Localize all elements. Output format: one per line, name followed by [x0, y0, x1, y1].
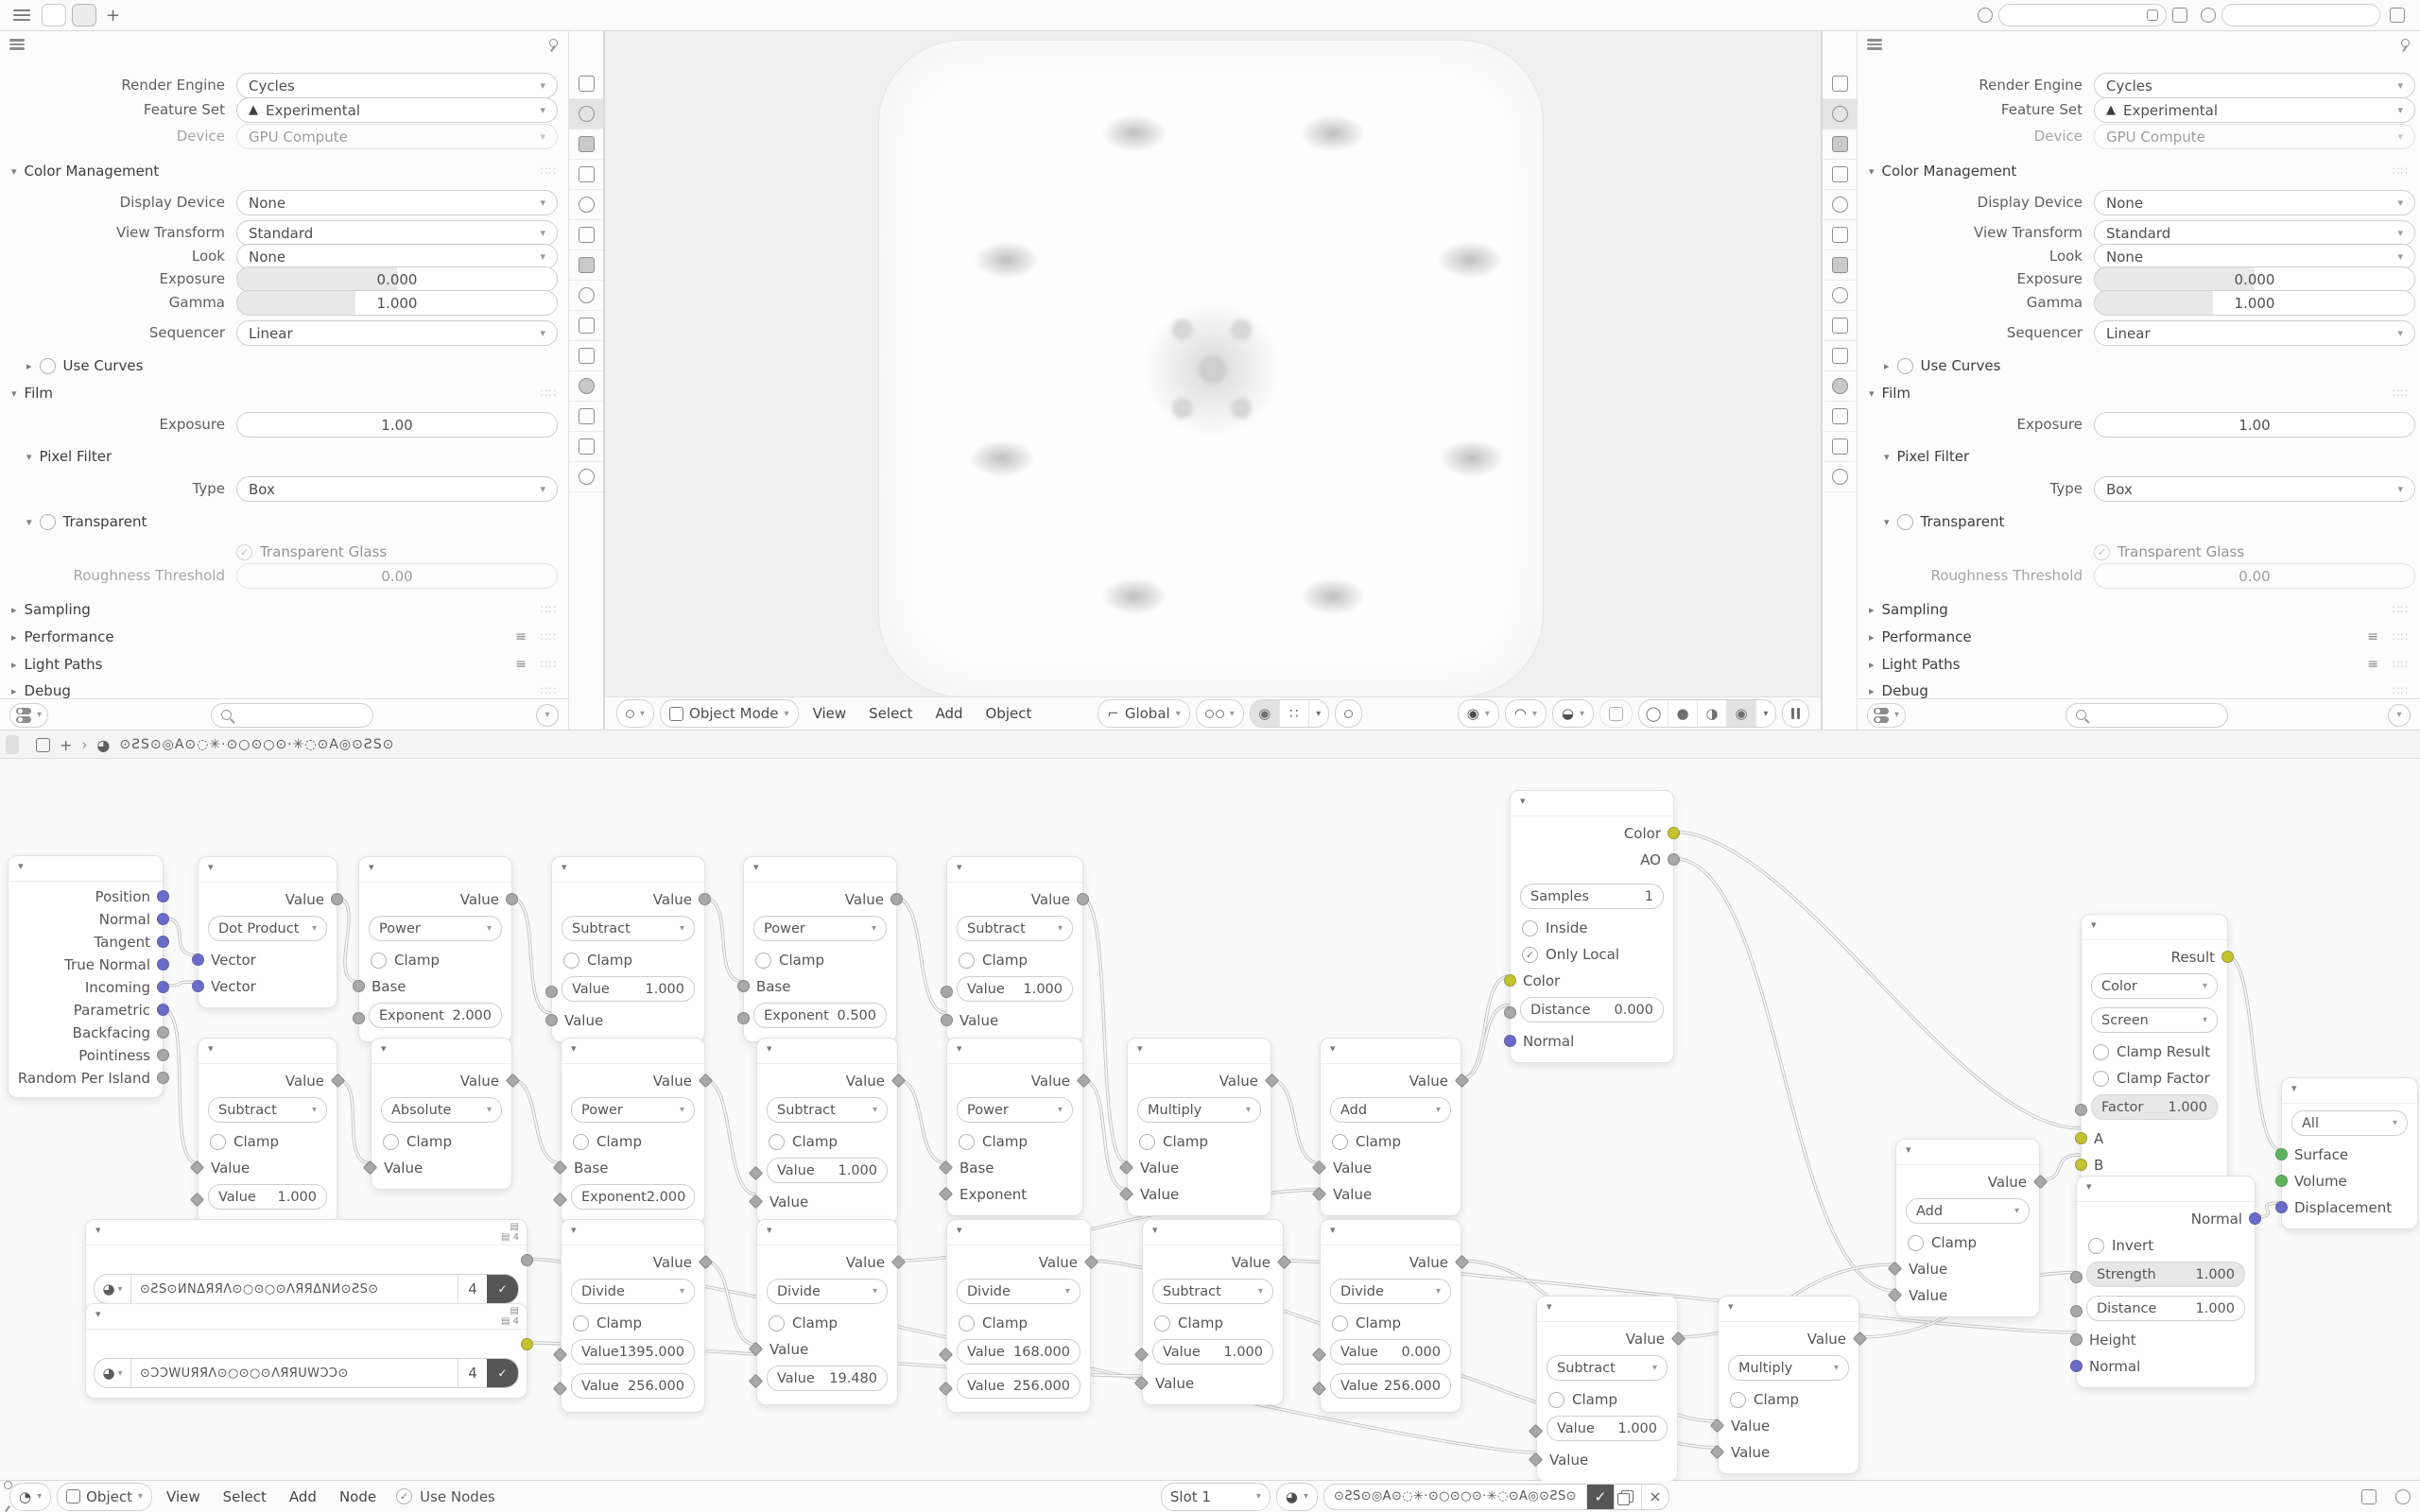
output-socket[interactable] — [2221, 951, 2234, 963]
collapse-icon[interactable]: ▾ — [1906, 1143, 1911, 1156]
checkbox-clamp[interactable]: Clamp — [359, 947, 511, 973]
fake-user-shield-icon[interactable]: ✓ — [487, 1359, 518, 1387]
input-socket[interactable] — [2275, 1175, 2288, 1187]
user-count-badge[interactable]: 4 — [458, 1359, 487, 1387]
input-socket[interactable] — [2275, 1148, 2288, 1160]
gamma-slider[interactable]: 1.000 — [2094, 290, 2415, 316]
node-p1[interactable]: ▾ValuePower▾ClampBaseExponent2.000 — [358, 856, 512, 1042]
output-socket[interactable] — [1077, 893, 1089, 905]
value-field[interactable]: Exponent2.000 — [571, 1184, 695, 1210]
output-socket[interactable] — [699, 893, 711, 905]
snap-dropdown[interactable]: ▾ — [1196, 699, 1244, 728]
image-name-field[interactable]: ⊙ƧS⊙ИΝΔЯЯΛ⊙○⊙○⊙ΛЯЯΔΝИ⊙ƧS⊙ — [131, 1275, 458, 1303]
section-light-paths[interactable]: ▸Light Paths — [1869, 652, 1961, 678]
output-socket[interactable] — [157, 1026, 169, 1039]
sequencer-select[interactable]: Linear▾ — [236, 320, 558, 346]
output-socket[interactable] — [890, 893, 903, 905]
menu-icon[interactable] — [13, 9, 30, 21]
node-img1[interactable]: ▾▤▤ 4◕▾⊙ƧS⊙ИΝΔЯЯΛ⊙○⊙○⊙ΛЯЯΔΝИ⊙ƧS⊙4✓ — [85, 1219, 527, 1314]
operation-select[interactable]: Power▾ — [753, 916, 887, 941]
node-mix[interactable]: ▾ResultColor▾Screen▾Clamp ResultClamp Fa… — [2081, 914, 2228, 1187]
input-socket[interactable] — [1504, 974, 1516, 987]
output-socket[interactable] — [157, 958, 169, 971]
tab-material[interactable] — [1823, 432, 1857, 462]
node-ao[interactable]: ▾ColorAOSamples1Inside✓Only LocalColorDi… — [1510, 790, 1674, 1063]
node-p3[interactable]: ▾ValuePower▾ClampBaseExponent2.000 — [561, 1038, 705, 1224]
value-field[interactable]: Samples1 — [1520, 884, 1664, 909]
menu-add[interactable]: Add — [926, 705, 971, 722]
add-view-layer-icon[interactable] — [2390, 8, 2405, 23]
input-socket[interactable] — [353, 1012, 365, 1024]
menu-view[interactable]: View — [158, 1488, 209, 1505]
tab-tool[interactable] — [1823, 69, 1857, 99]
section-transparent[interactable]: ▾ Transparent — [26, 509, 147, 535]
node-s4[interactable]: ▾ValueSubtract▾ClampValue1.000Value — [1142, 1219, 1284, 1405]
input-socket[interactable] — [1312, 1381, 1327, 1396]
input-socket[interactable] — [1504, 1006, 1516, 1019]
operation-select[interactable]: All▾ — [2291, 1110, 2408, 1136]
workspace-tab-1[interactable] — [42, 4, 66, 26]
preset-icon[interactable]: ≡ — [2367, 625, 2378, 650]
node-mul2[interactable]: ▾ValueMultiply▾ClampValueValue — [1718, 1296, 1859, 1474]
input-socket[interactable] — [2070, 1271, 2083, 1283]
panel-options-button[interactable]: ▾ — [2388, 704, 2411, 727]
render-engine-select[interactable]: Cycles▾ — [236, 73, 558, 98]
collapse-icon[interactable]: ▾ — [957, 861, 962, 873]
preset-icon[interactable]: ≡ — [2367, 652, 2378, 678]
output-socket[interactable] — [521, 1254, 533, 1266]
input-socket[interactable] — [553, 1347, 568, 1362]
value-field[interactable]: Value1.000 — [1152, 1339, 1273, 1365]
gizmos-dropdown[interactable]: ◠▾ — [1505, 699, 1547, 728]
collapse-icon[interactable]: ▾ — [381, 1042, 387, 1055]
value-field[interactable]: Value256.000 — [1330, 1373, 1451, 1399]
tab-modifiers[interactable] — [569, 281, 603, 311]
value-field[interactable]: Distance1.000 — [2086, 1296, 2245, 1321]
node-d3[interactable]: ▾ValueDivide▾ClampValue168.000Value256.0… — [946, 1219, 1091, 1413]
collapse-icon[interactable]: ▾ — [95, 1308, 101, 1320]
value-field[interactable]: Value1.000 — [208, 1184, 327, 1210]
tab-physics[interactable] — [1823, 341, 1857, 371]
output-socket[interactable] — [157, 913, 169, 925]
view-layer-selector[interactable] — [2221, 4, 2380, 26]
node-d2[interactable]: ▾ValueDivide▾ClampValueValue19.480 — [756, 1219, 898, 1405]
editor-type-dropdown[interactable]: ◔▾ — [9, 1483, 51, 1511]
viewport-3d[interactable]: ▾ Object Mode▾ View Select Add Object ⌐ … — [605, 31, 1821, 730]
checkbox-clamp[interactable]: Clamp — [562, 1310, 704, 1336]
menu-node[interactable]: Node — [331, 1488, 385, 1505]
section-transparent[interactable]: ▾ Transparent — [1884, 509, 2004, 535]
tab-world[interactable] — [1823, 220, 1857, 250]
copy-icon[interactable] — [2172, 8, 2187, 23]
operation-select[interactable]: Divide▾ — [1330, 1279, 1451, 1304]
transparent-glass-row[interactable]: ✓ Transparent Glass — [2094, 540, 2244, 565]
collapse-icon[interactable]: ▾ — [571, 1224, 577, 1236]
collapse-icon[interactable]: ▾ — [1152, 1224, 1158, 1236]
value-field[interactable]: Value1.000 — [767, 1158, 888, 1183]
collapse-icon[interactable]: ▾ — [562, 861, 567, 873]
pin-id-icon[interactable] — [545, 39, 559, 52]
tab-object-data[interactable] — [1823, 402, 1857, 432]
input-socket[interactable] — [545, 986, 558, 998]
tab-texture[interactable] — [569, 462, 603, 492]
collapse-icon[interactable]: ▾ — [1330, 1224, 1336, 1236]
operation-select[interactable]: Divide▾ — [767, 1279, 888, 1304]
roughness-threshold-slider[interactable]: 0.00 — [2094, 563, 2415, 589]
workspace-tab-2[interactable] — [72, 4, 96, 26]
tab-material[interactable] — [569, 432, 603, 462]
node-s5[interactable]: ▾ValueSubtract▾ClampValue1.000Value — [1536, 1296, 1678, 1481]
tab-tool[interactable] — [569, 69, 603, 99]
transparent-glass-checkbox[interactable]: ✓ — [2094, 544, 2110, 560]
collapse-icon[interactable]: ▾ — [18, 860, 24, 872]
value-field[interactable]: Value19.480 — [767, 1366, 888, 1391]
collapse-icon[interactable]: ▾ — [767, 1042, 772, 1055]
overlays-dropdown[interactable]: ◒▾ — [1552, 699, 1594, 728]
input-socket[interactable] — [2070, 1360, 2083, 1372]
collapse-icon[interactable]: ▾ — [208, 1042, 214, 1055]
feature-set-select[interactable]: ▲Experimental▾ — [2094, 97, 2415, 123]
tab-particles[interactable] — [569, 311, 603, 341]
input-socket[interactable] — [737, 1012, 750, 1024]
checkbox-clamp[interactable]: Clamp — [552, 947, 704, 973]
section-light-paths[interactable]: ▸Light Paths — [11, 652, 103, 678]
menu-select[interactable]: Select — [215, 1488, 275, 1505]
pause-render-button[interactable] — [1782, 699, 1809, 728]
checkbox-clamp[interactable]: Clamp — [1321, 1128, 1461, 1155]
proportional-icon[interactable]: ◉ — [1251, 700, 1279, 727]
transparent-glass-row[interactable]: ✓ Transparent Glass — [236, 540, 387, 565]
operation-select[interactable]: Power▾ — [369, 916, 502, 941]
value-field[interactable]: Value1.000 — [1547, 1416, 1668, 1441]
section-use-curves[interactable]: ▸ Use Curves — [1884, 353, 2000, 379]
node-mul1[interactable]: ▾ValueMultiply▾ClampValueValue — [1127, 1038, 1271, 1216]
tab-output[interactable] — [1823, 129, 1857, 160]
material-slot-dropdown[interactable]: Slot 1▾ — [1161, 1483, 1270, 1511]
output-socket[interactable] — [1668, 853, 1680, 866]
pin-id-icon[interactable] — [2397, 39, 2411, 52]
collapse-icon[interactable]: ▾ — [767, 1224, 772, 1236]
display-device-select[interactable]: None▾ — [236, 190, 558, 215]
collapse-icon[interactable]: ▾ — [208, 861, 214, 873]
collapse-icon[interactable]: ▾ — [2291, 1082, 2297, 1094]
transparent-checkbox[interactable] — [1897, 514, 1913, 530]
options-icon[interactable] — [2395, 1489, 2411, 1504]
feature-set-select[interactable]: ▲Experimental▾ — [236, 97, 558, 123]
section-use-curves[interactable]: ▸ Use Curves — [26, 353, 143, 379]
look-select[interactable]: None▾ — [2094, 244, 2415, 269]
tab-constraints[interactable] — [1823, 371, 1857, 402]
section-sampling[interactable]: ▸Sampling — [11, 597, 91, 623]
operation-select[interactable]: Subtract▾ — [1547, 1355, 1668, 1381]
section-color-management[interactable]: ▾Color Management — [11, 159, 159, 184]
input-socket[interactable] — [2075, 1132, 2087, 1144]
operation-select[interactable]: Screen▾ — [2091, 1007, 2218, 1033]
display-device-select[interactable]: None▾ — [2094, 190, 2415, 215]
value-field[interactable]: Value1.000 — [957, 976, 1073, 1002]
view-transform-select[interactable]: Standard▾ — [236, 220, 558, 246]
checkbox-clamp[interactable]: Clamp — [372, 1128, 511, 1155]
exposure-slider[interactable]: 0.000 — [2094, 266, 2415, 292]
operation-select[interactable]: Dot Product▾ — [208, 916, 327, 941]
material-name-field[interactable]: ⊙ƧS⊙◎A⊙◌✳·⊙○⊙○⊙·✳◌⊙A◎⊙ƧS⊙ — [1324, 1485, 1586, 1509]
input-socket[interactable] — [545, 1014, 558, 1026]
transparent-glass-checkbox[interactable]: ✓ — [236, 544, 252, 560]
editor-mode-icon[interactable] — [36, 738, 50, 752]
input-socket[interactable] — [553, 1192, 568, 1207]
operation-select[interactable]: Color▾ — [2091, 973, 2218, 999]
output-socket[interactable] — [157, 1004, 169, 1016]
value-field[interactable]: Value1395.000 — [571, 1339, 695, 1365]
value-field[interactable]: Distance0.000 — [1520, 997, 1664, 1022]
operation-select[interactable]: Power▾ — [571, 1097, 695, 1123]
fake-user-shield-icon[interactable]: ✓ — [1586, 1485, 1614, 1509]
checkbox-clamp[interactable]: Clamp — [744, 947, 896, 973]
tab-world[interactable] — [569, 220, 603, 250]
filter-dropdown[interactable]: ▾ — [1867, 703, 1906, 728]
xray-toggle[interactable] — [1599, 699, 1633, 728]
sequencer-select[interactable]: Linear▾ — [2094, 320, 2415, 346]
input-socket[interactable] — [1312, 1347, 1327, 1362]
tab-texture[interactable] — [1823, 462, 1857, 492]
output-socket[interactable] — [157, 890, 169, 902]
region-handle[interactable] — [6, 735, 19, 754]
output-socket[interactable] — [506, 893, 518, 905]
output-socket[interactable] — [2249, 1212, 2261, 1225]
input-socket[interactable] — [2075, 1104, 2087, 1116]
collapse-icon[interactable]: ▾ — [571, 1042, 577, 1055]
operation-select[interactable]: Add▾ — [1906, 1198, 2030, 1224]
input-socket[interactable] — [2070, 1305, 2083, 1317]
input-socket[interactable] — [192, 954, 204, 966]
checkbox-clamp-result[interactable]: Clamp Result — [2082, 1039, 2227, 1065]
value-field[interactable]: Exponent2.000 — [369, 1003, 502, 1028]
use-curves-checkbox[interactable] — [40, 358, 56, 374]
browse-image-dropdown[interactable]: ◕▾ — [95, 1275, 131, 1303]
node-s3[interactable]: ▾ValueSubtract▾ClampValue1.000Value — [756, 1038, 898, 1224]
device-select[interactable]: GPU Compute▾ — [2094, 124, 2415, 149]
output-socket[interactable] — [157, 936, 169, 948]
node-img2[interactable]: ▾▤▤ 4◕▾⊙ƆƆWUЯЯΛ⊙○⊙○⊙ΛЯЯUWƆƆ⊙4✓ — [85, 1303, 527, 1399]
menu-add[interactable]: Add — [281, 1488, 325, 1505]
checkbox-clamp[interactable]: Clamp — [947, 947, 1082, 973]
operation-select[interactable]: Add▾ — [1330, 1097, 1451, 1123]
editor-type-icon[interactable] — [1867, 39, 1882, 50]
value-field[interactable]: Value168.000 — [957, 1339, 1080, 1365]
unlink-datablock-icon[interactable]: × — [1641, 1485, 1668, 1509]
operation-select[interactable]: Divide▾ — [957, 1279, 1080, 1304]
transform-orientation-dropdown[interactable]: ⌐ Global▾ — [1098, 699, 1189, 728]
value-field[interactable]: Value0.000 — [1330, 1339, 1451, 1365]
node-add2[interactable]: ▾ValueAdd▾ClampValueValue — [1895, 1139, 2040, 1317]
node-p4[interactable]: ▾ValuePower▾ClampBaseExponent — [946, 1038, 1083, 1216]
tab-scene[interactable] — [1823, 190, 1857, 220]
input-socket[interactable] — [941, 1014, 953, 1026]
input-socket[interactable] — [192, 980, 204, 992]
operation-select[interactable]: Absolute▾ — [381, 1097, 502, 1123]
operation-select[interactable]: Subtract▾ — [1152, 1279, 1273, 1304]
shading-rendered-icon[interactable]: ◉ — [1726, 700, 1755, 727]
checkbox-clamp[interactable]: Clamp — [947, 1128, 1082, 1155]
section-film[interactable]: ▾Film — [1869, 381, 1910, 406]
input-socket[interactable] — [190, 1192, 205, 1207]
node-d1[interactable]: ▾ValueDivide▾ClampValue1395.000Value256.… — [561, 1219, 705, 1413]
collapse-icon[interactable]: ▾ — [1728, 1300, 1734, 1313]
exposure-slider[interactable]: 0.000 — [236, 266, 558, 292]
node-s1[interactable]: ▾ValueSubtract▾ClampValue1.000Value — [551, 856, 705, 1042]
checkbox-inside[interactable]: Inside — [1511, 915, 1673, 941]
proportional-center-toggle[interactable] — [1335, 699, 1362, 728]
menu-view[interactable]: View — [804, 705, 856, 722]
checkbox-clamp[interactable]: Clamp — [757, 1310, 897, 1336]
operation-select[interactable]: Subtract▾ — [562, 916, 695, 941]
copy-datablock-icon[interactable] — [1614, 1485, 1641, 1509]
value-field[interactable]: Value256.000 — [571, 1373, 695, 1399]
output-socket[interactable] — [521, 1338, 533, 1350]
gamma-slider[interactable]: 1.000 — [236, 290, 558, 316]
filter-dropdown[interactable]: ▾ — [9, 703, 48, 728]
tab-object[interactable] — [569, 250, 603, 281]
tab-scene[interactable] — [569, 190, 603, 220]
collapse-icon[interactable]: ▾ — [2091, 919, 2097, 931]
add-workspace-button[interactable]: + — [106, 6, 120, 26]
browse-image-dropdown[interactable]: ◕▾ — [95, 1359, 131, 1387]
value-field[interactable]: Value256.000 — [957, 1373, 1080, 1399]
input-socket[interactable] — [1134, 1347, 1149, 1362]
falloff-grid-icon[interactable]: ∷ — [1279, 700, 1308, 727]
checkbox-clamp[interactable]: Clamp — [947, 1310, 1090, 1336]
user-count-badge[interactable]: 4 — [458, 1275, 487, 1303]
input-socket[interactable] — [941, 986, 953, 998]
use-curves-checkbox[interactable] — [1897, 358, 1913, 374]
operation-select[interactable]: Divide▾ — [571, 1279, 695, 1304]
collapse-icon[interactable]: ▾ — [957, 1224, 962, 1236]
show-gizmo-dropdown[interactable]: ◉▾ — [1458, 699, 1499, 728]
output-socket[interactable] — [331, 893, 343, 905]
input-socket[interactable] — [737, 980, 750, 992]
device-select[interactable]: GPU Compute▾ — [236, 124, 558, 149]
collapse-icon[interactable]: ▾ — [753, 861, 759, 873]
output-socket[interactable] — [1668, 827, 1680, 839]
input-socket[interactable] — [2070, 1333, 2083, 1346]
collapse-icon[interactable]: ▾ — [95, 1224, 101, 1236]
image-name-field[interactable]: ⊙ƆƆWUЯЯΛ⊙○⊙○⊙ΛЯЯUWƆƆ⊙ — [131, 1359, 458, 1387]
input-socket[interactable] — [1504, 1035, 1516, 1047]
node-add1[interactable]: ▾ValueAdd▾ClampValueValue — [1320, 1038, 1461, 1216]
input-socket[interactable] — [1529, 1423, 1544, 1438]
film-exposure-slider[interactable]: 1.00 — [2094, 412, 2415, 438]
section-performance[interactable]: ▸Performance — [1869, 625, 1972, 650]
collapse-icon[interactable]: ▾ — [1520, 795, 1526, 807]
node-m1[interactable]: ▾ValueSubtract▾ClampValueValue1.000 — [198, 1038, 337, 1224]
use-nodes-checkbox[interactable]: ✓Use Nodes — [390, 1488, 495, 1505]
shading-wireframe-icon[interactable]: ◯ — [1639, 700, 1668, 727]
section-color-management[interactable]: ▾Color Management — [1869, 159, 2016, 184]
menu-object[interactable]: Object — [977, 705, 1041, 722]
tab-render[interactable] — [1823, 99, 1857, 129]
section-film[interactable]: ▾Film — [11, 381, 53, 406]
collapse-icon[interactable]: ▾ — [369, 861, 374, 873]
collapse-icon[interactable]: ▾ — [1330, 1042, 1336, 1055]
node-d4[interactable]: ▾ValueDivide▾ClampValue0.000Value256.000 — [1320, 1219, 1461, 1413]
output-socket[interactable] — [157, 981, 169, 993]
output-socket[interactable] — [157, 1072, 169, 1084]
snap-grid-icon[interactable] — [2361, 1489, 2377, 1504]
checkbox-clamp-factor[interactable]: Clamp Factor — [2082, 1065, 2227, 1091]
node-out[interactable]: ▾All▾SurfaceVolumeDisplacement — [2281, 1077, 2418, 1229]
input-socket[interactable] — [2075, 1159, 2087, 1171]
collapse-icon[interactable]: ▾ — [957, 1042, 962, 1055]
checkbox-clamp[interactable]: Clamp — [199, 1128, 337, 1155]
value-field[interactable]: Strength1.000 — [2086, 1262, 2245, 1287]
preset-icon[interactable]: ≡ — [515, 652, 527, 678]
tab-view-layer[interactable] — [569, 160, 603, 190]
node-geo[interactable]: ▾PositionNormalTangentTrue NormalIncomin… — [8, 855, 164, 1098]
operation-select[interactable]: Power▾ — [957, 1097, 1073, 1123]
unlink-icon[interactable] — [2147, 9, 2158, 21]
menu-select[interactable]: Select — [860, 705, 921, 722]
collapse-icon[interactable]: ▾ — [2086, 1180, 2092, 1193]
value-field[interactable]: Factor1.000 — [2091, 1094, 2218, 1120]
scene-selector[interactable] — [1998, 4, 2167, 26]
input-socket[interactable] — [553, 1381, 568, 1396]
pixel-filter-type-select[interactable]: Box▾ — [236, 476, 558, 502]
checkbox-clamp[interactable]: Clamp — [1896, 1229, 2039, 1256]
value-field[interactable]: Value1.000 — [562, 976, 695, 1002]
checkbox-invert[interactable]: Invert — [2077, 1232, 2255, 1259]
tab-modifiers[interactable] — [1823, 281, 1857, 311]
roughness-threshold-slider[interactable]: 0.00 — [236, 563, 558, 589]
preset-icon[interactable]: ≡ — [515, 625, 527, 650]
tab-render[interactable] — [569, 99, 603, 129]
tab-output[interactable] — [569, 129, 603, 160]
input-socket[interactable] — [2275, 1201, 2288, 1213]
section-sampling[interactable]: ▸Sampling — [1869, 597, 1948, 623]
tab-particles[interactable] — [1823, 311, 1857, 341]
node-vm1[interactable]: ▾ValueDot Product▾VectorVector — [198, 856, 337, 1008]
checkbox-clamp[interactable]: Clamp — [1537, 1386, 1677, 1413]
input-socket[interactable] — [939, 1381, 954, 1396]
checkbox-only-local[interactable]: ✓Only Local — [1511, 941, 1673, 968]
fake-user-shield-icon[interactable]: ✓ — [487, 1275, 518, 1303]
tab-object-data[interactable] — [569, 402, 603, 432]
operation-select[interactable]: Subtract▾ — [957, 916, 1073, 941]
checkbox-clamp[interactable]: Clamp — [562, 1128, 704, 1155]
operation-select[interactable]: Subtract▾ — [767, 1097, 888, 1123]
node-p2[interactable]: ▾ValuePower▾ClampBaseExponent0.500 — [743, 856, 897, 1042]
view-transform-select[interactable]: Standard▾ — [2094, 220, 2415, 246]
shading-solid-icon[interactable]: ● — [1668, 700, 1697, 727]
section-pixel-filter[interactable]: ▾Pixel Filter — [26, 444, 112, 470]
input-socket[interactable] — [353, 980, 365, 992]
input-socket[interactable] — [939, 1347, 954, 1362]
panel-options-button[interactable]: ▾ — [536, 704, 559, 727]
checkbox-clamp[interactable]: Clamp — [1719, 1386, 1858, 1413]
collapse-icon[interactable]: ▾ — [1137, 1042, 1143, 1055]
pixel-filter-type-select[interactable]: Box▾ — [2094, 476, 2415, 502]
editor-type-icon[interactable] — [9, 39, 25, 50]
properties-search-field[interactable] — [211, 703, 373, 728]
object-mode-dropdown[interactable]: Object Mode▾ — [660, 699, 799, 728]
proportional-edit-toggle[interactable]: ◉ ∷ ▾ — [1250, 699, 1329, 728]
film-exposure-slider[interactable]: 1.00 — [236, 412, 558, 438]
material-browse-dropdown[interactable]: ◕▾ — [1276, 1483, 1318, 1511]
checkbox-clamp[interactable]: Clamp — [1321, 1310, 1461, 1336]
properties-search-field[interactable] — [2066, 703, 2228, 728]
operation-select[interactable]: Multiply▾ — [1137, 1097, 1261, 1123]
tool-mode-dropdown[interactable]: ▾ — [616, 699, 654, 728]
node-bump[interactable]: ▾NormalInvertStrength1.000Distance1.000H… — [2076, 1176, 2256, 1388]
